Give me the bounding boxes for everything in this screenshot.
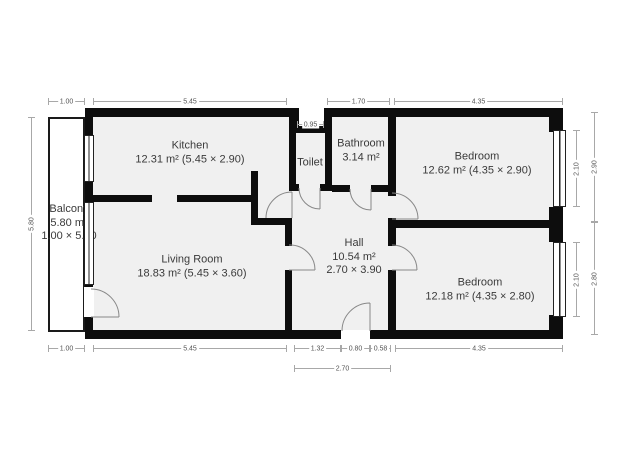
dim-top-toilet: 0.95 bbox=[297, 124, 324, 125]
room-label-bedroom-bottom: Bedroom 12.18 m² (4.35 × 2.80) bbox=[425, 277, 534, 304]
room-label-toilet: Toilet bbox=[297, 156, 323, 170]
dim-right-bedroom-bottom: 2.80 bbox=[594, 222, 595, 335]
bathroom-door-arc bbox=[350, 189, 371, 210]
dim-right-bedroom-top: 2.90 bbox=[594, 112, 595, 222]
floor-plan-canvas: Kitchen 12.31 m² (5.45 × 2.90) Toilet Ba… bbox=[0, 0, 624, 468]
dim-bottom-living: 5.45 bbox=[93, 348, 287, 349]
dim-top-kitchen: 5.45 bbox=[93, 101, 287, 102]
dim-right-window-top: 2.10 bbox=[576, 130, 577, 207]
room-label-bathroom: Bathroom 3.14 m² bbox=[337, 138, 385, 165]
living-room-door-arc bbox=[289, 245, 315, 270]
bedroom-bottom-door-arc bbox=[392, 245, 417, 270]
dim-bottom-hall-right: 0.58 bbox=[370, 348, 391, 349]
dim-right-window-bottom: 2.10 bbox=[576, 242, 577, 317]
dim-bottom-hall-left: 1.32 bbox=[294, 348, 341, 349]
dim-top-bedroom: 4.35 bbox=[394, 101, 563, 102]
room-label-hall: Hall 10.54 m² 2.70 × 3.90 bbox=[326, 237, 381, 278]
kitchen-door-arc bbox=[266, 192, 292, 218]
dim-bottom-hall-door: 0.80 bbox=[341, 348, 370, 349]
toilet-door-arc bbox=[299, 188, 320, 209]
balcony-door-arc bbox=[91, 289, 119, 317]
dim-bottom-balcony: 1.00 bbox=[48, 348, 85, 349]
dim-top-balcony: 1.00 bbox=[48, 101, 85, 102]
bedroom-top-door-arc bbox=[392, 193, 418, 219]
room-label-bedroom-top: Bedroom 12.62 m² (4.35 × 2.90) bbox=[422, 151, 531, 178]
room-label-kitchen: Kitchen 12.31 m² (5.45 × 2.90) bbox=[135, 140, 244, 167]
dim-bottom-bedroom: 4.35 bbox=[395, 348, 563, 349]
dim-top-bathroom: 1.70 bbox=[327, 101, 390, 102]
dim-bottom-hall-total: 2.70 bbox=[294, 368, 391, 369]
door-swings bbox=[0, 0, 624, 468]
entrance-door-arc bbox=[342, 303, 370, 331]
dim-left-balcony: 5.80 bbox=[31, 117, 32, 331]
room-label-living-room: Living Room 18.83 m² (5.45 × 3.60) bbox=[137, 254, 246, 281]
